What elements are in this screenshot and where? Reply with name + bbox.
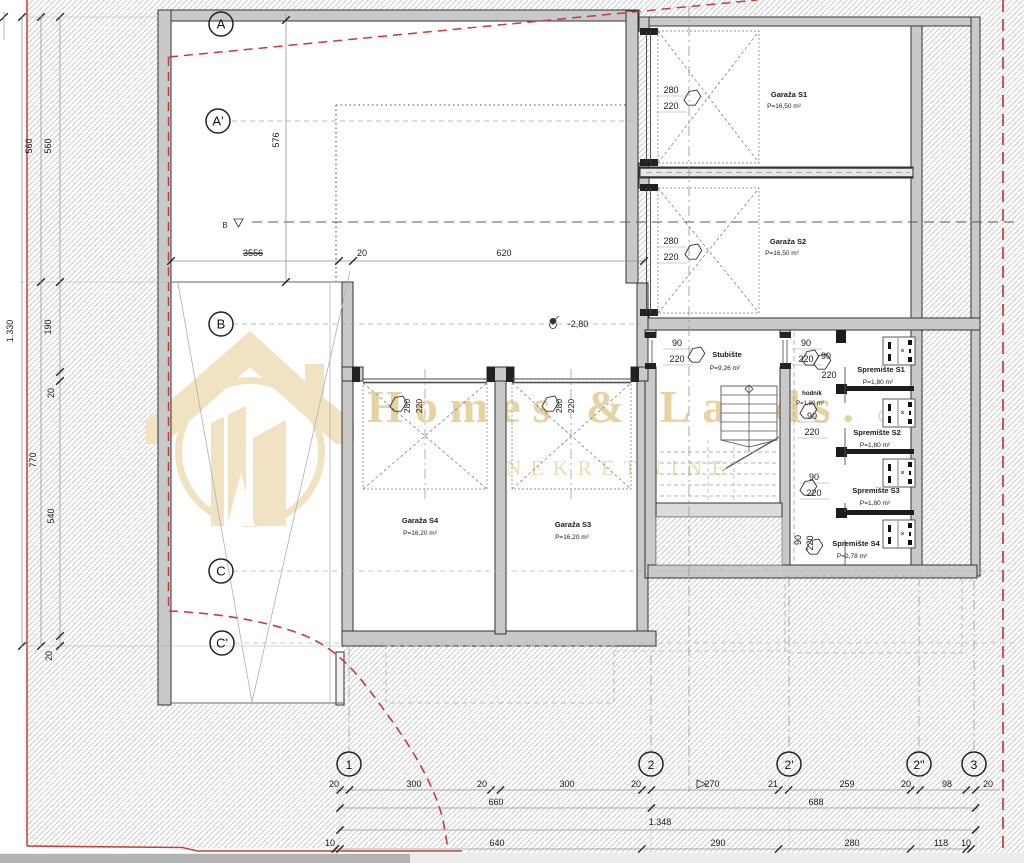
svg-text:620: 620 — [496, 248, 511, 258]
svg-text:Spremište S3: Spremište S3 — [852, 486, 900, 495]
svg-text:A: A — [217, 17, 226, 32]
svg-text:220: 220 — [804, 427, 819, 437]
svg-text:560: 560 — [43, 138, 53, 153]
svg-text:280: 280 — [402, 399, 412, 413]
svg-text:Spremište S2: Spremište S2 — [853, 428, 901, 437]
svg-text:20: 20 — [477, 779, 487, 789]
svg-text:Spremište S1: Spremište S1 — [857, 365, 905, 374]
svg-text:688: 688 — [808, 797, 823, 807]
svg-text:90: 90 — [821, 351, 831, 361]
svg-text:21: 21 — [768, 779, 778, 789]
svg-text:Homes & Lands.: Homes & Lands. — [367, 381, 866, 432]
svg-text:2'': 2'' — [913, 758, 924, 772]
svg-text:P=1,80 m²: P=1,80 m² — [863, 379, 894, 386]
svg-text:P=9,26 m²: P=9,26 m² — [710, 365, 741, 372]
svg-text:Garaža S1: Garaža S1 — [771, 90, 807, 99]
svg-text:20: 20 — [46, 388, 56, 398]
svg-text:98: 98 — [942, 779, 952, 789]
svg-text:Spremište S4: Spremište S4 — [832, 539, 880, 548]
svg-text:-2,80: -2,80 — [568, 319, 589, 329]
svg-text:2': 2' — [785, 758, 794, 772]
svg-text:P=2,78 m²: P=2,78 m² — [837, 553, 868, 560]
svg-text:P=1,80 m²: P=1,80 m² — [796, 401, 824, 407]
svg-text:hodnik: hodnik — [802, 391, 822, 397]
svg-text:20: 20 — [357, 248, 367, 258]
svg-text:560: 560 — [24, 138, 34, 153]
svg-text:660: 660 — [488, 797, 503, 807]
svg-text:20: 20 — [901, 779, 911, 789]
svg-text:1.330: 1.330 — [5, 320, 15, 343]
svg-text:20: 20 — [44, 651, 54, 661]
svg-text:Garaža S2: Garaža S2 — [770, 237, 806, 246]
svg-text:P=16,20 m²: P=16,20 m² — [403, 530, 438, 537]
svg-text:1.348: 1.348 — [649, 817, 672, 827]
svg-text:540: 540 — [46, 508, 56, 523]
svg-text:220: 220 — [798, 354, 813, 364]
svg-text:280: 280 — [844, 838, 859, 848]
svg-text:1: 1 — [346, 758, 353, 772]
svg-text:C': C' — [216, 636, 228, 651]
svg-text:90: 90 — [801, 338, 811, 348]
svg-text:P=1,80 m²: P=1,80 m² — [860, 442, 891, 449]
svg-text:20: 20 — [983, 779, 993, 789]
svg-text:770: 770 — [28, 452, 38, 467]
svg-text:10: 10 — [325, 838, 335, 848]
svg-text:220: 220 — [566, 399, 576, 413]
svg-text:3556: 3556 — [243, 248, 263, 258]
svg-text:190: 190 — [43, 319, 53, 334]
svg-text:220: 220 — [414, 399, 424, 413]
svg-text:P=16,20 m²: P=16,20 m² — [555, 534, 590, 541]
svg-text:640: 640 — [489, 838, 504, 848]
svg-text:280: 280 — [554, 399, 564, 413]
svg-text:280: 280 — [663, 85, 678, 95]
svg-text:90: 90 — [807, 411, 817, 421]
svg-text:220: 220 — [669, 354, 684, 364]
svg-text:220: 220 — [806, 488, 821, 498]
svg-text:A': A' — [212, 114, 223, 129]
svg-text:280: 280 — [663, 236, 678, 246]
svg-text:290: 290 — [710, 838, 725, 848]
svg-text:220: 220 — [663, 252, 678, 262]
svg-text:2: 2 — [648, 758, 655, 772]
svg-text:10: 10 — [961, 838, 971, 848]
svg-text:118: 118 — [934, 838, 948, 848]
svg-text:300: 300 — [406, 779, 421, 789]
svg-text:20: 20 — [329, 779, 339, 789]
svg-text:90: 90 — [793, 535, 803, 545]
svg-text:P=16,50 m²: P=16,50 m² — [765, 250, 800, 257]
svg-text:NEKRETNINE: NEKRETNINE — [506, 456, 734, 480]
svg-text:Garaža S4: Garaža S4 — [402, 516, 439, 525]
svg-text:C: C — [216, 564, 225, 579]
svg-text:P=1,80 m²: P=1,80 m² — [860, 500, 891, 507]
svg-text:220: 220 — [663, 101, 678, 111]
svg-text:3: 3 — [971, 758, 978, 772]
svg-text:90: 90 — [672, 338, 682, 348]
svg-text:Stubište: Stubište — [712, 350, 742, 359]
svg-text:B: B — [222, 221, 227, 230]
svg-text:576: 576 — [271, 132, 281, 147]
svg-text:220: 220 — [821, 370, 836, 380]
svg-text:Garaža S3: Garaža S3 — [555, 520, 591, 529]
svg-text:259: 259 — [839, 779, 854, 789]
svg-text:300: 300 — [559, 779, 574, 789]
svg-text:20: 20 — [631, 779, 641, 789]
svg-text:P=16,50 m²: P=16,50 m² — [767, 103, 802, 110]
svg-text:B: B — [217, 317, 226, 332]
